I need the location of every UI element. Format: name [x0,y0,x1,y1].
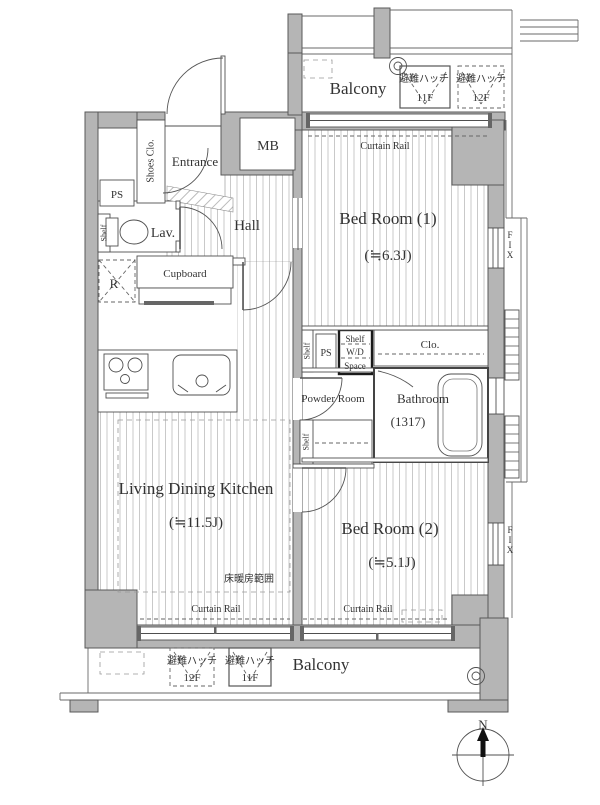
wd-line1: Shelf [346,334,365,344]
ldk-floor [98,412,293,590]
escape-hatch-bottom-outer-floor: 12F [183,672,200,684]
washbasin [300,420,372,464]
fix-window-lower [488,523,504,565]
bathroom-window [488,378,504,414]
floor-plan-page: Balcony 避難ハッチ 11F 避難ハッチ 12F Entrance MB … [0,0,600,800]
corridor-floor [237,262,293,412]
lav-label: Lav. [151,226,175,241]
bedroom1-floor [302,130,452,330]
hall-label: Hall [234,218,260,234]
escape-hatch-top-inner-floor: 11F [417,92,434,104]
closet-label: Clo. [421,339,440,351]
entrance-door [167,56,225,114]
escape-hatch-top-outer-label: 避難ハッチ [456,72,506,85]
escape-hatch-bottom-outer-label: 避難ハッチ [167,654,217,667]
escape-hatch-bottom-inner-label: 避難ハッチ [225,654,275,667]
bedroom1-floor-right [452,185,488,330]
bathroom-size: (1317) [391,414,426,429]
wd-line2: W/D [346,347,364,357]
compass-icon [452,727,514,786]
curtain-rail-ldk-label: Curtain Rail [191,604,240,615]
escape-hatch-top-inner-label: 避難ハッチ [399,72,449,85]
wd-line3: Space [344,361,366,371]
curtain-rail-bedroom1-label: Curtain Rail [360,141,409,152]
compass-north-label: N [478,717,488,732]
refrigerator-label: R [110,276,119,291]
ldk-size: (≒11.5J) [169,515,223,531]
powder-room-label: Powder Room [301,393,365,405]
ldk-label: Living Dining Kitchen [119,479,274,498]
escape-hatch-bottom-inner-floor: 11F [242,672,259,684]
shaft-louver-lower [505,416,519,478]
escape-hatch-top-outer-floor: 12F [472,92,489,104]
bedroom1-label: Bed Room (1) [339,209,436,228]
bathroom-label: Bathroom [397,391,449,406]
mid-shelf-label: Shelf [303,342,312,359]
bedroom2-label: Bed Room (2) [341,519,438,538]
floor-heating-label: 床暖房範囲 [224,572,274,585]
floor-plan-svg: Balcony 避難ハッチ 11F 避難ハッチ 12F Entrance MB … [0,0,600,800]
cupboard-label: Cupboard [163,268,207,280]
fix-lower-label: FIX [507,525,514,555]
shaft-louver-upper [505,310,519,380]
ldk-window [137,626,294,641]
bedroom1-window [306,113,492,128]
sink-icon [173,355,230,395]
bathtub-icon [438,374,482,456]
fix-upper-label: FIX [507,230,514,260]
balcony-top-label: Balcony [330,79,387,98]
bedroom2-size: (≒5.1J) [368,555,415,571]
powder-shelf-label: Shelf [302,433,311,450]
fix-window-upper [488,228,504,268]
ps-top-label: PS [111,189,123,201]
toilet-icon [120,220,148,244]
entrance-label: Entrance [172,154,218,169]
curtain-rail-bedroom2-label: Curtain Rail [343,604,392,615]
hall-floor [167,175,293,262]
bedroom1-size: (≒6.3J) [364,248,411,264]
bedroom2-window [300,626,455,641]
shoes-closet-label: Shoes Clo. [146,139,157,182]
balcony-bottom-label: Balcony [293,655,350,674]
mb-label: MB [257,139,279,154]
lav-shelf-label: Shelf [100,224,109,241]
ps-mid-label: PS [320,348,331,359]
